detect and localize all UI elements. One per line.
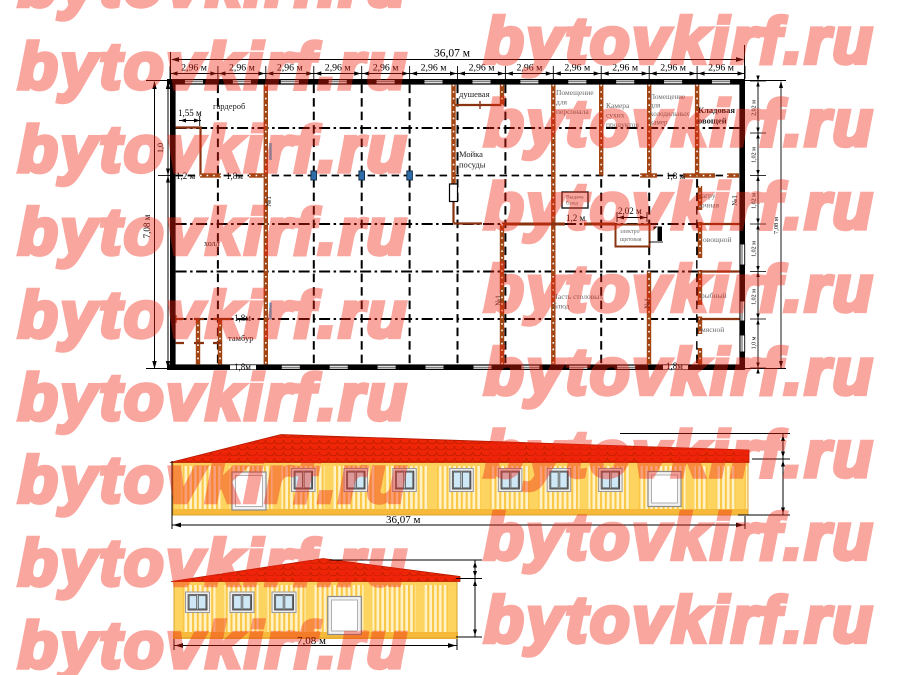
svg-text:bytovkirf.ru: bytovkirf.ru	[18, 361, 409, 434]
svg-text:bytovkirf.ru: bytovkirf.ru	[484, 169, 875, 242]
svg-text:bytovkirf.ru: bytovkirf.ru	[484, 87, 875, 160]
svg-text:bytovkirf.ru: bytovkirf.ru	[18, 112, 409, 185]
svg-text:bytovkirf.ru: bytovkirf.ru	[18, 609, 409, 675]
svg-text:bytovkirf.ru: bytovkirf.ru	[18, 443, 409, 516]
svg-text:bytovkirf.ru: bytovkirf.ru	[484, 4, 875, 77]
svg-text:bytovkirf.ru: bytovkirf.ru	[484, 500, 875, 573]
svg-text:bytovkirf.ru: bytovkirf.ru	[484, 418, 875, 491]
svg-text:bytovkirf.ru: bytovkirf.ru	[18, 526, 409, 599]
svg-text:bytovkirf.ru: bytovkirf.ru	[18, 195, 409, 268]
svg-text:Мойкапосуды: Мойкапосуды	[459, 149, 486, 170]
svg-text:мясной: мясной	[701, 325, 724, 334]
svg-text:bytovkirf.ru: bytovkirf.ru	[18, 30, 409, 103]
svg-text:bytovkirf.ru: bytovkirf.ru	[484, 583, 875, 656]
svg-text:2,96 м: 2,96 м	[421, 63, 447, 74]
svg-text:36,07 м: 36,07 м	[434, 48, 471, 60]
svg-text:bytovkirf.ru: bytovkirf.ru	[484, 335, 875, 408]
svg-text:bytovkirf.ru: bytovkirf.ru	[18, 0, 409, 20]
svg-text:bytovkirf.ru: bytovkirf.ru	[18, 278, 409, 351]
svg-text:bytovkirf.ru: bytovkirf.ru	[484, 252, 875, 325]
